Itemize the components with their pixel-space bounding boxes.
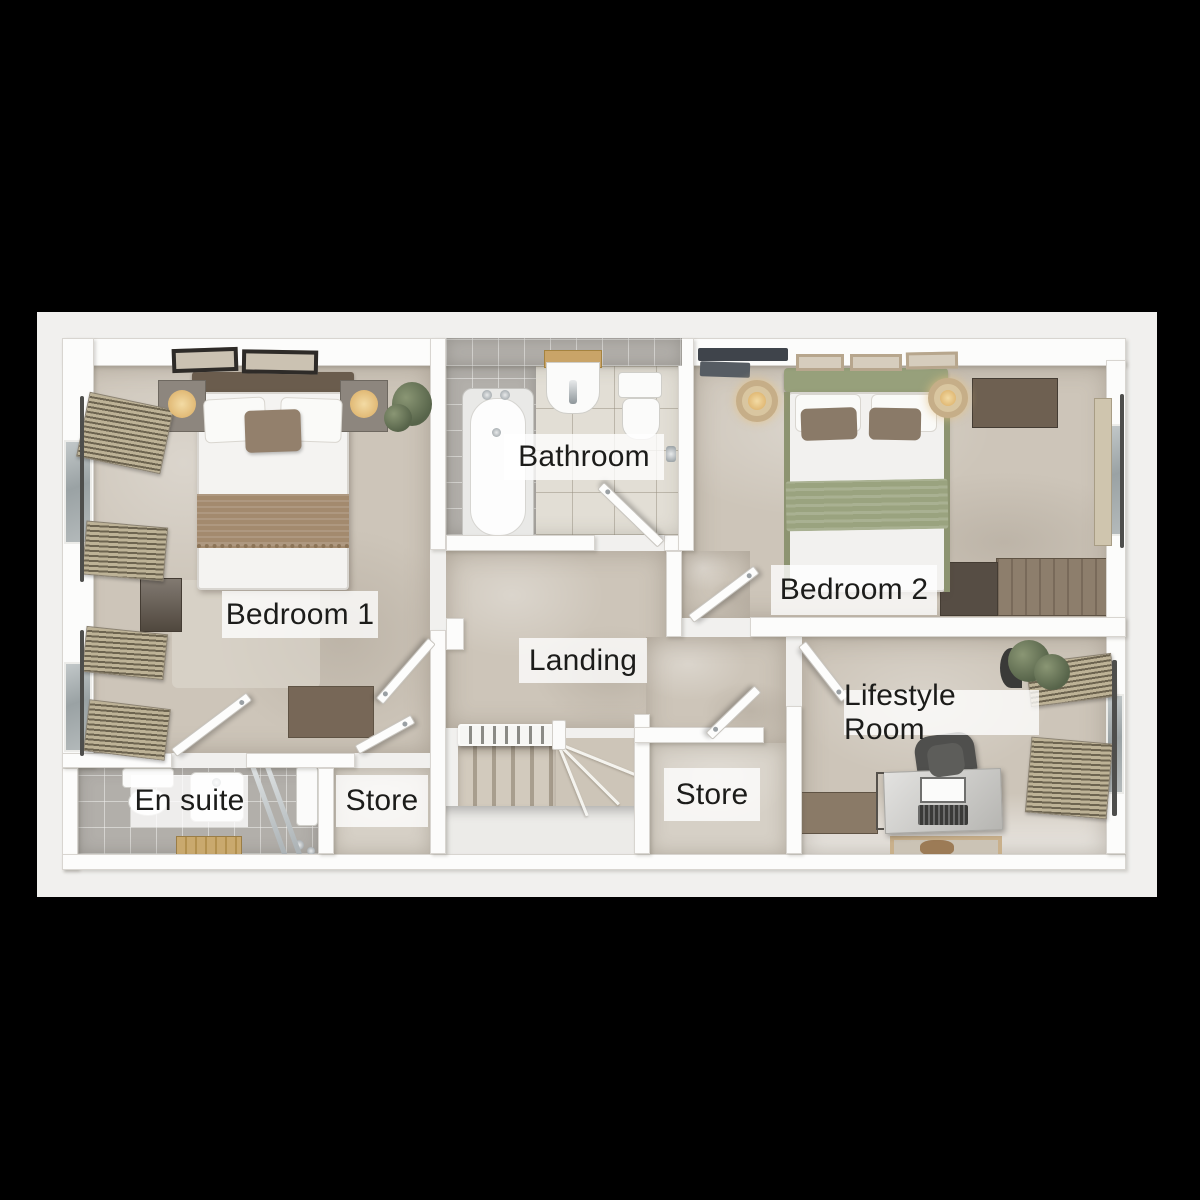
picture-frame — [796, 354, 844, 371]
tv-screen — [698, 348, 788, 361]
bedroom1-cabinet — [140, 578, 182, 632]
room-label-bedroom2: Bedroom 2 — [771, 565, 937, 615]
ensuite-store-divider-wall — [318, 768, 334, 854]
plant — [1034, 654, 1070, 690]
curtain-rod — [80, 630, 84, 756]
floor-plan-canvas: Bedroom 1 Bathroom Bedroom 2 Landing Sto… — [0, 0, 1200, 1200]
faucet — [569, 380, 577, 404]
bath-drain — [492, 428, 501, 437]
door-handle-plate — [666, 446, 676, 462]
bedroom1-right-wall-lower — [430, 630, 446, 854]
room-label-landing: Landing — [519, 638, 647, 683]
toilet-cistern — [618, 372, 662, 398]
room-label-store-center: Store — [664, 768, 760, 821]
bedroom2-desk — [996, 558, 1108, 616]
store-center-top-wall — [634, 727, 764, 743]
picture-frame — [906, 352, 958, 370]
staircase-treads — [458, 746, 556, 806]
landing-wall-return — [446, 618, 464, 650]
accent-pillow — [869, 408, 922, 441]
laptop-screen — [920, 777, 966, 803]
bed-throw — [197, 494, 349, 548]
picture-frame — [242, 349, 318, 374]
shower-tray — [296, 766, 318, 826]
bed-throw — [786, 479, 949, 532]
plant — [384, 404, 412, 432]
accent-pillow — [244, 409, 301, 453]
bedside-lamp — [168, 390, 196, 418]
stair-balustrade — [458, 724, 558, 746]
room-label-ensuite: En suite — [131, 775, 248, 827]
accent-pillow — [800, 407, 857, 441]
desk-frame-legs — [876, 772, 884, 830]
bedside-lamp — [350, 390, 378, 418]
office-chair-seat — [926, 742, 966, 779]
bedroom2-blind-panel — [1094, 398, 1112, 546]
picture-frame — [850, 354, 902, 371]
landing-bedroom2-wall — [666, 551, 682, 637]
laptop-keyboard — [918, 805, 968, 825]
lifestyle-left-wall — [786, 706, 802, 854]
stair-newel-post — [552, 720, 566, 750]
bedroom1-headboard — [192, 372, 354, 394]
curtain-rod — [1112, 660, 1117, 816]
bedroom1-chest — [288, 686, 374, 738]
lamp-bulb — [748, 392, 766, 410]
bedroom1-blind-panel — [83, 699, 171, 761]
bathroom-bedroom2-wall — [678, 338, 694, 551]
picture-frame — [172, 347, 239, 373]
bedroom2-bottom-wall — [750, 617, 1126, 637]
lifestyle-blind-panel — [1025, 737, 1113, 820]
bedroom1-blind-panel — [82, 521, 168, 582]
bedroom2-dresser — [972, 378, 1058, 428]
bath-tap — [482, 390, 492, 400]
room-label-bathroom: Bathroom — [504, 434, 664, 480]
bedroom1-blind-panel — [82, 626, 168, 680]
stairwell-void — [446, 806, 640, 854]
lifestyle-sideboard — [798, 792, 878, 834]
bath-tap — [500, 390, 510, 400]
bedroom2-headboard — [784, 368, 948, 392]
curtain-rod — [80, 396, 84, 582]
bedroom1-right-wall-upper — [430, 338, 446, 550]
curtain-rod — [1120, 394, 1124, 548]
room-label-bedroom1: Bedroom 1 — [222, 591, 378, 638]
outer-wall-bottom — [62, 854, 1126, 870]
bath-mat — [176, 836, 242, 856]
room-label-lifestyle: Lifestyle Room — [844, 690, 1039, 735]
room-label-store-left: Store — [336, 775, 428, 827]
lamp-bulb — [940, 390, 956, 406]
bedroom1-bottom-wall-b — [246, 753, 355, 768]
tv-panel — [700, 361, 750, 378]
bathroom-bottom-wall — [446, 535, 595, 551]
